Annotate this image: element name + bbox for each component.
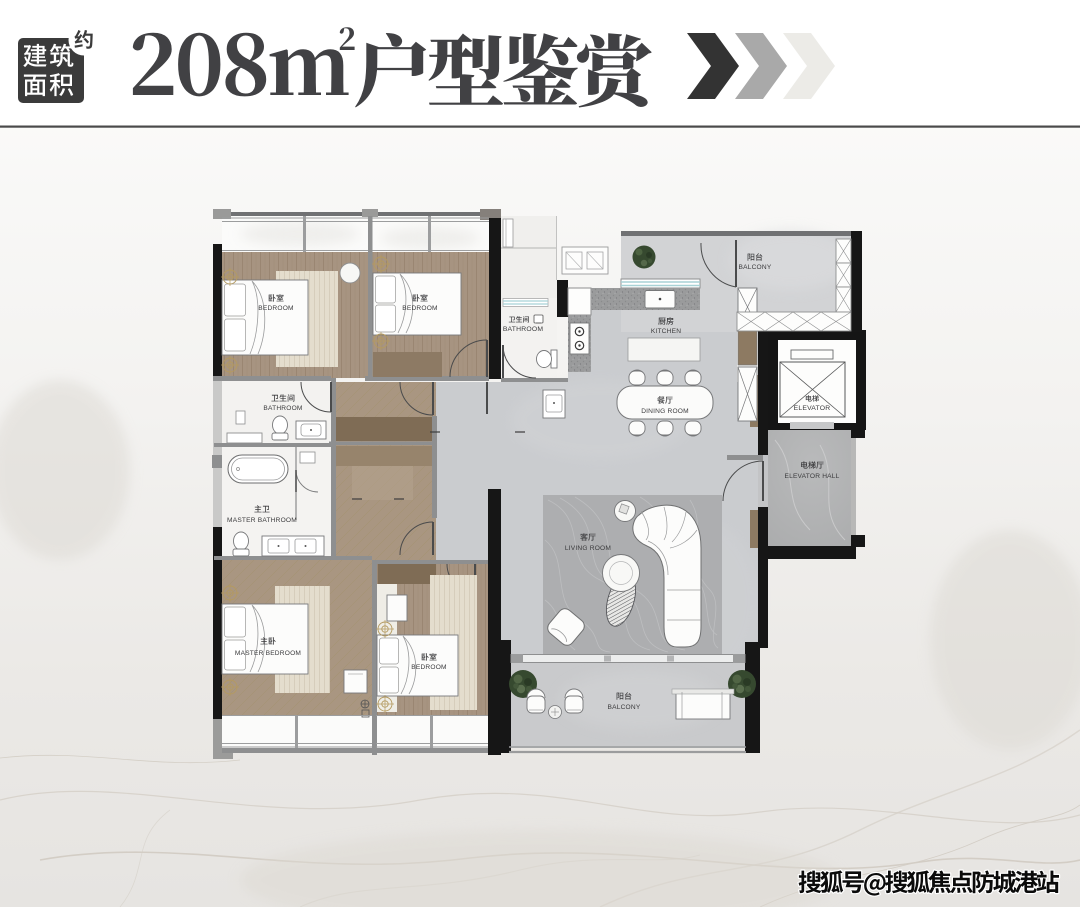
svg-text:BEDROOM: BEDROOM bbox=[258, 305, 293, 312]
svg-text:BEDROOM: BEDROOM bbox=[411, 664, 446, 671]
svg-text:DINING ROOM: DINING ROOM bbox=[641, 408, 689, 415]
svg-text:BEDROOM: BEDROOM bbox=[402, 305, 437, 312]
svg-text:LIVING ROOM: LIVING ROOM bbox=[565, 545, 611, 552]
svg-text:MASTER BATHROOM: MASTER BATHROOM bbox=[227, 517, 297, 524]
svg-text:KITCHEN: KITCHEN bbox=[651, 328, 681, 335]
svg-text:BALCONY: BALCONY bbox=[608, 704, 641, 711]
svg-text:ELEVATOR: ELEVATOR bbox=[794, 405, 831, 412]
svg-text:BATHROOM: BATHROOM bbox=[503, 326, 544, 333]
svg-text:MASTER BEDROOM: MASTER BEDROOM bbox=[235, 650, 301, 657]
svg-text:BATHROOM: BATHROOM bbox=[263, 405, 302, 412]
svg-text:BALCONY: BALCONY bbox=[739, 264, 772, 271]
svg-text:ELEVATOR HALL: ELEVATOR HALL bbox=[784, 473, 839, 480]
